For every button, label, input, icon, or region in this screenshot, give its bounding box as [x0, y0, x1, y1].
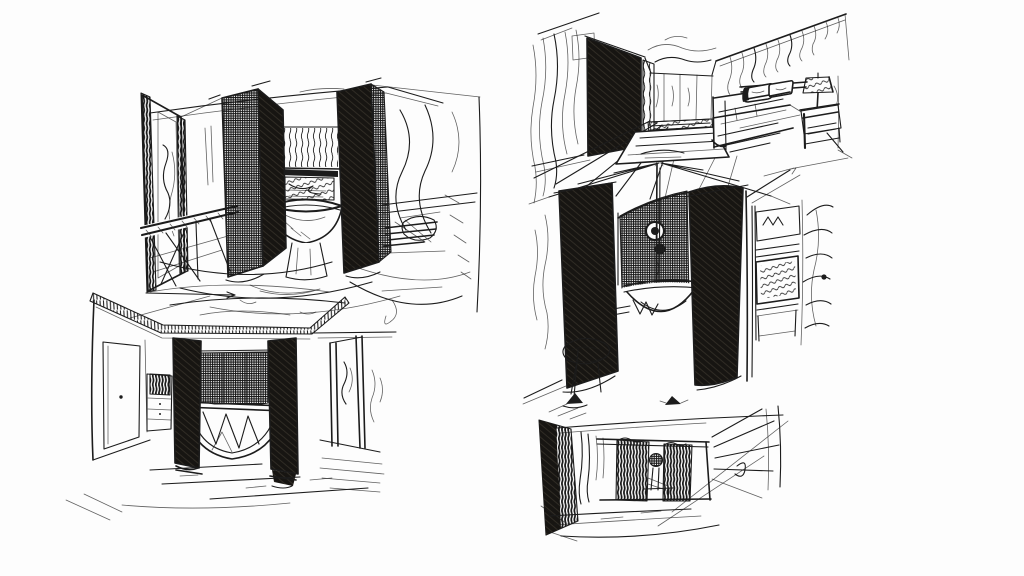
- foliage: [801, 200, 833, 345]
- screen-panel-right: [337, 78, 391, 278]
- back-panel-b: [663, 443, 692, 502]
- back-wall-stripes: [281, 127, 341, 169]
- corner-diagonals: [747, 168, 800, 203]
- back-wall: [648, 73, 713, 134]
- sketch-bedroom-perspective: [531, 13, 852, 203]
- mirror: [141, 93, 222, 292]
- floor-rails: [523, 380, 566, 404]
- sketch-bedroom-tub: [66, 285, 396, 520]
- ceiling-hatch: [549, 404, 586, 419]
- ceiling-scribbles: [146, 285, 345, 315]
- ink-dot: [821, 274, 826, 279]
- sketch-corridor-bath: [130, 78, 481, 324]
- sketch-room-vignette: [539, 396, 788, 541]
- panel-left: [554, 182, 618, 392]
- door-jamb: [746, 191, 753, 381]
- alcove-shelf: [280, 169, 338, 200]
- left-dark-wall: [539, 420, 604, 535]
- sketch-shower-enclosure: [523, 150, 833, 408]
- left-curtain: [531, 30, 590, 203]
- right-door: [320, 336, 383, 452]
- pendant-lamp: [660, 396, 688, 405]
- ceiling-lines: [150, 85, 480, 120]
- panel-right: [684, 185, 748, 390]
- left-wall-lines: [533, 215, 548, 349]
- drawer-cabinet: [147, 374, 172, 431]
- ink-sketch-canvas: [0, 0, 1024, 576]
- floor-lines: [66, 458, 384, 520]
- pillar-right: [268, 338, 298, 488]
- sketchbook-page: [0, 0, 1024, 576]
- back-panel-a: [616, 438, 649, 501]
- headboard-screen: [196, 350, 274, 404]
- cornice-band: [90, 293, 396, 339]
- pillar-left: [173, 338, 201, 470]
- shelving: [755, 206, 800, 341]
